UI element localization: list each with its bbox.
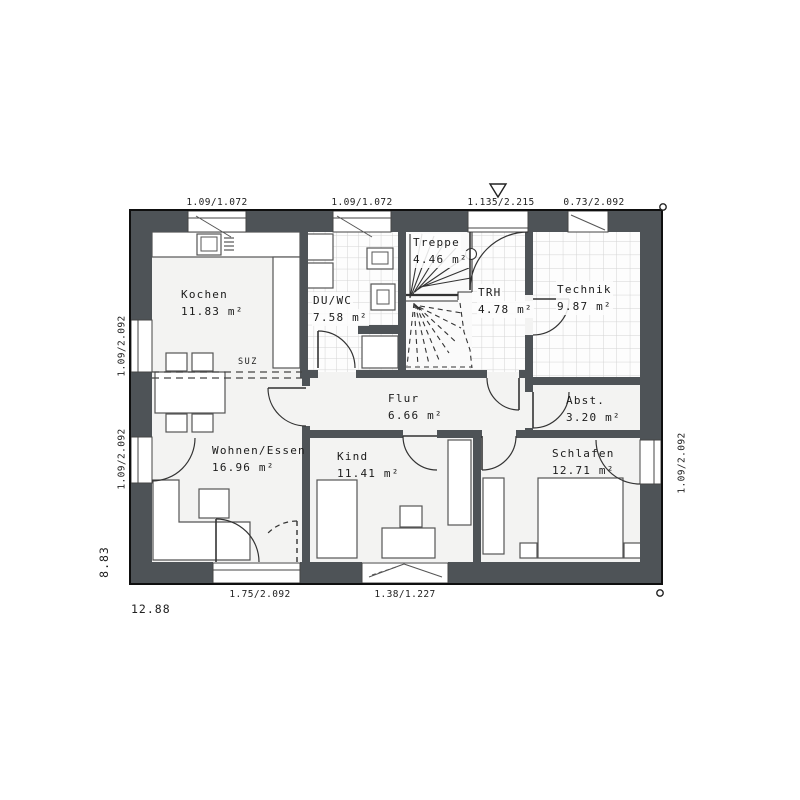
dim-window-duwc: 1.09/1.072 (331, 197, 392, 208)
marker-circle-top-icon (660, 204, 666, 210)
dim-terrace-door: 1.75/2.092 (229, 589, 290, 600)
chair (400, 506, 422, 527)
room-label-trh: TRH4.78 m² (477, 284, 534, 318)
room-label-flur: Flur6.66 m² (388, 390, 443, 424)
room-label-technik: Technik9.87 m² (556, 281, 613, 315)
dim-window-left-upper: 1.09/2.092 (117, 315, 128, 376)
window-left-upper (131, 320, 152, 372)
marker-circle-bottom-icon (657, 590, 663, 596)
room-label-abst: Abst.3.20 m² (566, 392, 621, 426)
dim-entrance-door: 1.135/2.215 (467, 197, 534, 208)
door-right-balcony (640, 440, 661, 484)
dim-window-technik: 0.73/2.092 (563, 197, 624, 208)
dim-door-left-lower: 1.09/2.092 (117, 428, 128, 489)
shower (362, 336, 398, 368)
entrance-door-frame (468, 211, 528, 232)
desk (382, 528, 435, 558)
bed-kind (317, 480, 357, 558)
double-bed (538, 478, 623, 558)
nightstand-right (624, 543, 641, 558)
annotation-suz: SUZ (238, 354, 258, 371)
room-label-wohnen: Wohnen/Essen16.96 m² (212, 442, 306, 476)
window-technik (568, 211, 608, 232)
dim-total-height: 8.83 (97, 546, 111, 578)
room-label-duwc: DU/WC7.58 m² (312, 292, 369, 326)
room-label-treppe: Treppe4.46 m² (412, 234, 469, 268)
dim-total-width: 12.88 (131, 602, 171, 616)
room-label-schlafen: Schlafen12.71 m² (552, 445, 615, 479)
room-label-kind: Kind11.41 m² (337, 448, 400, 482)
wardrobe-kind (448, 440, 471, 525)
nightstand-left (520, 543, 537, 558)
dim-window-kind: 1.38/1.227 (374, 589, 435, 600)
room-label-kochen: Kochen11.83 m² (181, 286, 244, 320)
coffee-table (199, 489, 229, 518)
window-kind (362, 563, 448, 583)
wall-stub (358, 325, 398, 334)
dim-window-kochen: 1.09/1.072 (186, 197, 247, 208)
dim-door-right-balcony: 1.09/2.092 (677, 432, 688, 493)
wardrobe-schlafen (483, 478, 504, 554)
door-terrace (213, 563, 300, 583)
window-duwc (333, 211, 391, 232)
entrance-marker-icon (490, 184, 506, 197)
floor-plan: Kochen11.83 m² DU/WC7.58 m² Treppe4.46 m… (0, 0, 800, 800)
door-left-balcony (131, 437, 152, 483)
